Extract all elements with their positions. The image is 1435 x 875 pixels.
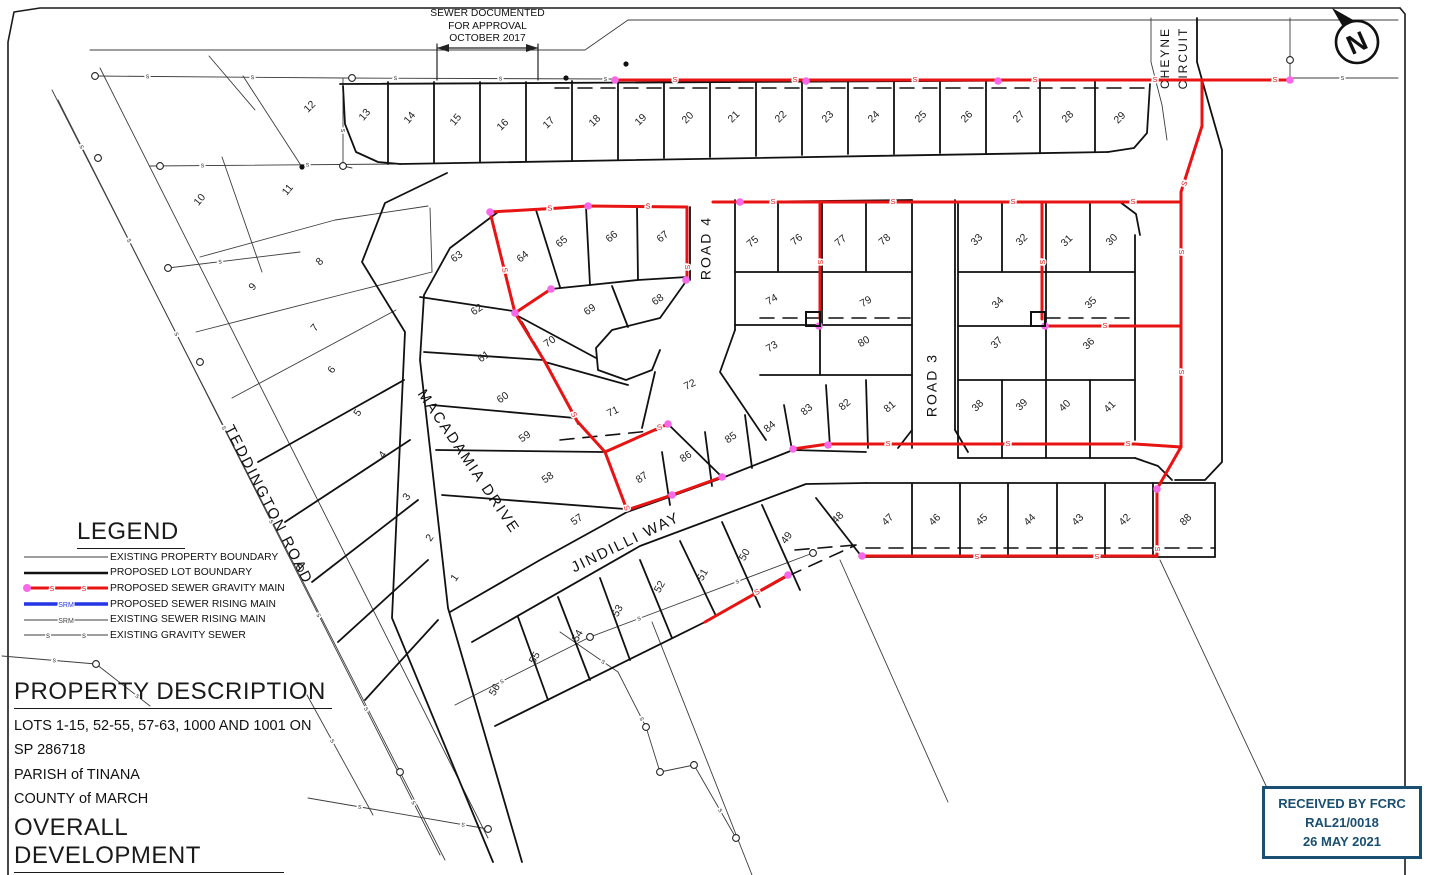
proposed-manhole-icon [789, 445, 797, 453]
proposed-lot-boundary-line [420, 297, 513, 311]
sewer-flow-letter: s [1341, 75, 1345, 82]
lot-number: 13 [356, 106, 373, 123]
proposed-sewer-gravity-main [705, 575, 788, 622]
proposed-lot-boundary-line [793, 450, 866, 452]
legend-item-label: PROPOSED SEWER GRAVITY MAIN [110, 583, 285, 594]
existing-boundary-line [200, 206, 428, 257]
sewer-manhole-icon [810, 550, 817, 557]
sewer-flow-letter: s [735, 578, 741, 586]
lot-number: 38 [969, 397, 986, 414]
existing-boundary-line [209, 56, 255, 110]
proposed-lot-boundary-line [866, 380, 868, 448]
lot-number: 72 [682, 377, 698, 393]
proposed-lot-boundary-line [745, 415, 752, 468]
proposed-lot-boundary-line [365, 620, 438, 700]
sewer-flow-letter: S [1179, 180, 1189, 188]
sewer-flow-letter: S [1094, 552, 1099, 561]
sewer-manhole-icon [340, 163, 347, 170]
lot-number: 59 [517, 428, 534, 445]
lot-number: 4 [376, 449, 389, 461]
lot-number: 18 [586, 112, 603, 129]
road-label: JINDILLI WAY [569, 509, 683, 576]
stamp-line: RECEIVED BY FCRC [1265, 794, 1419, 813]
sewer-manhole-icon [197, 359, 204, 366]
sewer-flow-letter: s [201, 162, 205, 169]
lot-number: 60 [495, 389, 512, 406]
property-title: PROPERTY DESCRIPTION [14, 678, 332, 709]
proposed-gravity-swatch-icon: SS [22, 581, 110, 595]
lot-number: 11 [280, 182, 296, 198]
sewer-flow-letter: s [125, 238, 133, 245]
sewer-flow-letter: s [716, 807, 724, 814]
lot-number: 83 [799, 401, 816, 418]
sewer-flow-letter: s [77, 144, 85, 151]
legend-item-label: PROPOSED LOT BOUNDARY [110, 567, 252, 578]
existing-boundary-line [430, 208, 432, 272]
proposed-manhole-icon [486, 208, 494, 216]
lot-number: 82 [837, 396, 854, 413]
proposed-lot-boundary-line [442, 495, 625, 509]
lot-number: 5 [351, 407, 364, 419]
lot-number: 43 [1069, 511, 1086, 528]
legend-item: ssEXISTING GRAVITY SEWER [22, 628, 322, 643]
development-title: OVERALL DEVELOPMENT [14, 814, 284, 873]
proposed-manhole-icon [802, 77, 810, 85]
sewer-flow-letter: S [1130, 197, 1135, 206]
proposed-lot-boundary-line [472, 483, 866, 642]
proposed-manhole-icon [682, 276, 690, 284]
existing-boundary-line [840, 560, 948, 802]
svg-text:s: s [46, 631, 50, 640]
svg-text:SRM: SRM [58, 618, 74, 625]
proposed-manhole-icon [718, 473, 726, 481]
legend-item-label: PROPOSED SEWER RISING MAIN [110, 599, 276, 610]
sewer-manhole-icon [93, 661, 100, 668]
existing-sewer-line [560, 632, 736, 838]
property-description: PROPERTY DESCRIPTION LOTS 1-15, 52-55, 5… [14, 678, 344, 807]
proposed-lot-boundary-line [1135, 458, 1172, 480]
proposed-lot-boundary-line [668, 424, 722, 477]
proposed-manhole-icon [611, 76, 619, 84]
lot-number: 40 [1056, 397, 1073, 414]
proposed-rising-swatch-icon: SRM [22, 597, 110, 611]
lot-number: 88 [1177, 511, 1194, 528]
proposed-manhole-icon [584, 202, 592, 210]
lot-number: 14 [401, 109, 418, 126]
lot-number: 46 [926, 511, 943, 528]
lot-number: 9 [246, 281, 259, 293]
sewer-flow-letter: S [912, 75, 917, 84]
proposed-lot-boundary-line [545, 362, 628, 385]
proposed-sewer-gravity-main [864, 80, 1202, 556]
lot-number: 61 [476, 348, 493, 365]
lot-number: 31 [1058, 232, 1075, 249]
lot-number: 45 [973, 511, 990, 528]
sewer-manhole-icon [587, 634, 594, 641]
sewer-flow-letter: S [1177, 249, 1186, 254]
sewer-flow-letter: S [547, 203, 553, 212]
proposed-sewer-gravity-main [515, 289, 551, 313]
proposed-manhole-icon [547, 285, 555, 293]
sewer-flow-letter: S [500, 267, 510, 274]
sewer-flow-letter: S [1125, 439, 1130, 448]
proposed-lot-boundary-line [600, 578, 630, 660]
existing-boundary-line [232, 310, 396, 398]
lot-number: 24 [865, 108, 882, 125]
lot-number: 47 [879, 511, 896, 528]
legend-item: SRMEXISTING SEWER RISING MAIN [22, 612, 322, 627]
legend-item-label: EXISTING SEWER RISING MAIN [110, 614, 266, 625]
legend-item: EXISTING PROPERTY BOUNDARY [22, 550, 322, 565]
sewer-flow-letter: S [792, 75, 797, 84]
sewer-flow-letter: S [770, 197, 775, 206]
lot-number: 79 [858, 294, 874, 310]
sewer-flow-letter: s [636, 615, 642, 623]
existing-boundary-line [196, 292, 352, 332]
lot-number: 77 [833, 232, 850, 249]
sewer-manhole-icon [349, 75, 356, 82]
proposed-sewer-gravity-main [490, 212, 515, 313]
lot-number: 30 [1103, 231, 1120, 248]
proposed-manhole-icon [511, 309, 519, 317]
sewer-flow-letter: S [1038, 259, 1047, 264]
lot-number: 3 [400, 491, 413, 503]
lot-number: 48 [829, 509, 846, 526]
proposed-sewer-gravity-main [793, 444, 1181, 449]
proposed-manhole-icon [736, 198, 744, 206]
lot-number: 26 [958, 108, 975, 125]
lot-number: 20 [679, 109, 696, 126]
lot-number: 67 [655, 228, 672, 245]
legend-title: LEGEND [77, 518, 185, 549]
lot-number: 73 [764, 339, 780, 355]
sewer-flow-letter: S [1152, 75, 1157, 84]
sheet-frame [1400, 8, 1405, 875]
proposed-lot-boundary-line [362, 173, 493, 862]
sewer-flow-letter: s [146, 73, 150, 80]
sewer-manhole-icon [157, 163, 164, 170]
lot-number: 71 [605, 404, 621, 420]
existing-sewer-line [150, 164, 398, 166]
boundary-node-icon [299, 164, 304, 169]
svg-text:s: s [82, 631, 86, 640]
proposed-lot-boundary-line [536, 210, 560, 287]
existing-boundary-line [243, 76, 302, 167]
sewer-manhole-icon [1287, 57, 1294, 64]
sewer-flow-letter: s [306, 162, 310, 169]
lot-number: 16 [494, 116, 511, 133]
lot-number: 63 [449, 248, 466, 265]
sewer-manhole-icon [92, 73, 99, 80]
lot-number: 58 [540, 469, 557, 486]
proposed-manhole-icon [1286, 76, 1294, 84]
property-description-line: SP 286718 [14, 742, 344, 758]
lot-number: 66 [604, 228, 621, 245]
proposed-manhole-icon [994, 77, 1002, 85]
lot-number: 84 [762, 418, 779, 435]
lot-number: 7 [308, 322, 321, 334]
proposed-lot-boundary-line [955, 430, 968, 452]
lot-number: 6 [325, 364, 338, 376]
sewer-flow-letter: S [1153, 546, 1162, 551]
proposed-lot-boundary-line [1120, 202, 1140, 235]
lot-number: 69 [582, 301, 599, 318]
lot-number: 80 [856, 334, 872, 350]
lot-number: 10 [191, 191, 208, 208]
lot-number: 27 [1010, 108, 1027, 125]
lot-number: 86 [678, 448, 695, 465]
sewer-manhole-icon [733, 835, 740, 842]
sewer-flow-letter: s [499, 678, 506, 686]
legend-item: SSPROPOSED SEWER GRAVITY MAIN [22, 581, 322, 596]
lot-number: 25 [912, 108, 929, 125]
sewer-manhole-icon [397, 769, 404, 776]
stamp-line: RAL21/0018 [1265, 813, 1419, 832]
lot-number: 29 [1111, 109, 1128, 126]
overall-development: OVERALL DEVELOPMENT TOTAL LOTS73 [14, 814, 284, 875]
lot-number: 87 [634, 469, 651, 486]
proposed-lot-boundary-line [720, 330, 766, 440]
boundary-node-icon [563, 75, 568, 80]
proposed-lot-boundary-line [495, 622, 705, 726]
proposed-lot-boundary-line [642, 372, 655, 428]
received-stamp: RECEIVED BY FCRCRAL21/001826 MAY 2021 [1262, 786, 1422, 859]
lot-number: 23 [819, 108, 836, 125]
sewer-flow-letter: s [499, 75, 503, 82]
proposed-lot-boundary-line [432, 405, 575, 418]
proposed-boundary-swatch-icon [22, 566, 110, 580]
lot-number: 53 [610, 603, 626, 619]
sewer-flow-letter: S [1005, 439, 1010, 448]
sewer-flow-letter: s [251, 74, 255, 81]
existing-boundary-line [222, 157, 262, 272]
lot-number: 64 [515, 248, 532, 265]
lot-number: 44 [1021, 511, 1038, 528]
property-description-line: COUNTY of MARCH [14, 791, 344, 807]
lot-number: 39 [1013, 396, 1030, 413]
road-label: CIRCUIT [1176, 27, 1190, 90]
sewer-flow-letter: s [339, 129, 346, 133]
lot-number: 36 [1080, 335, 1097, 352]
sewer-manhole-icon [643, 724, 650, 731]
lot-number: 17 [540, 114, 557, 131]
lot-number: 33 [968, 231, 985, 248]
sewer-note-line: FOR APPROVAL [420, 21, 555, 34]
sewer-flow-letter: S [1272, 75, 1277, 84]
sewer-manhole-icon [691, 762, 698, 769]
lot-number: 68 [650, 291, 667, 308]
lot-number: 15 [447, 111, 464, 128]
proposed-lot-boundary-line [551, 277, 687, 289]
sewer-flow-letter: s [604, 76, 608, 83]
lot-number: 37 [988, 334, 1005, 351]
lot-number: 76 [789, 231, 806, 248]
lot-number: 55 [527, 650, 543, 666]
lot-number: 78 [877, 231, 894, 248]
sewer-flow-letter: S [645, 202, 650, 211]
lot-number: 54 [570, 628, 586, 644]
sewer-flow-letter: s [638, 716, 646, 723]
proposed-lot-boundary-line [612, 286, 628, 327]
sewer-flow-letter: S [1177, 369, 1186, 374]
property-description-line: LOTS 1-15, 52-55, 57-63, 1000 AND 1001 O… [14, 718, 344, 734]
proposed-lot-boundary-line [312, 500, 418, 582]
lot-number: 81 [882, 398, 899, 415]
sewer-manhole-icon [165, 265, 172, 272]
sewer-flow-letter: S [683, 264, 692, 269]
proposed-manhole-icon [858, 552, 866, 560]
lot-number: 32 [1013, 231, 1030, 248]
existing-sewer-line [455, 553, 813, 705]
lot-number: 22 [772, 108, 789, 125]
sewer-note-line: SEWER DOCUMENTED [420, 8, 555, 21]
lot-number: 85 [723, 429, 740, 446]
legend: LEGEND EXISTING PROPERTY BOUNDARYPROPOSE… [22, 518, 322, 643]
lot-number: 65 [554, 233, 571, 250]
sewer-flow-letter: S [885, 439, 890, 448]
sewer-flow-letter: S [974, 552, 979, 561]
lot-number: 1 [448, 572, 461, 584]
easement-dashed-line [795, 545, 856, 550]
lot-number: 57 [569, 511, 586, 528]
svg-text:S: S [50, 586, 55, 593]
proposed-manhole-icon [664, 420, 672, 428]
proposed-lot-boundary-line [258, 380, 404, 462]
proposed-lot-boundary-line [705, 432, 712, 486]
lot-number: 8 [314, 255, 327, 268]
north-arrow-letter: N [1342, 25, 1372, 60]
sewer-note: SEWER DOCUMENTEDFOR APPROVALOCTOBER 2017 [420, 8, 555, 46]
existing-sewer-line [168, 252, 300, 268]
proposed-lot-boundary-line [450, 450, 793, 612]
sewer-flow-letter: s [172, 331, 180, 338]
sewer-manhole-icon [485, 826, 492, 833]
boundary-node-icon [623, 61, 628, 66]
proposed-manhole-icon [668, 491, 676, 499]
property-description-line: PARISH of TINANA [14, 767, 344, 783]
sewer-flow-letter: s [600, 658, 607, 666]
legend-item: PROPOSED LOT BOUNDARY [22, 566, 322, 581]
proposed-manhole-icon [784, 571, 792, 579]
road-label: CHEYNE [1158, 27, 1172, 89]
lot-number: 49 [779, 530, 796, 547]
proposed-lot-boundary-line [640, 560, 672, 638]
sewer-flow-letter: s [409, 800, 417, 807]
legend-item-label: EXISTING GRAVITY SEWER [110, 630, 246, 641]
existing-gravity-swatch-icon: ss [22, 628, 110, 642]
sewer-flow-letter: S [1032, 75, 1037, 84]
existing-rising-swatch-icon: SRM [22, 613, 110, 627]
north-arrow-flag-icon [1332, 8, 1355, 27]
lot-number: 34 [989, 294, 1006, 311]
sewer-flow-letter: S [1010, 197, 1015, 206]
sewer-flow-letter: S [816, 259, 825, 264]
lot-number: 35 [1082, 294, 1099, 311]
proposed-lot-boundary-line [400, 152, 1108, 164]
svg-text:SRM: SRM [58, 602, 74, 609]
lot-number: 74 [764, 292, 780, 308]
lot-number: 12 [301, 98, 318, 115]
proposed-lot-boundary-line [343, 86, 400, 164]
lot-number: 19 [632, 111, 649, 128]
proposed-manhole-icon [1153, 485, 1161, 493]
lot-number: 41 [1101, 398, 1118, 415]
sewer-manhole-icon [657, 769, 664, 776]
sewer-flow-letter: s [394, 75, 398, 82]
sewer-flow-letter: s [362, 706, 370, 713]
proposed-manhole-icon [824, 441, 832, 449]
lot-number: 2 [423, 532, 436, 544]
proposed-lot-boundary-line [586, 207, 590, 285]
road-label: ROAD 4 [698, 216, 714, 280]
sewer-flow-letter: s [218, 258, 223, 265]
proposed-lot-boundary-line [826, 385, 830, 447]
svg-text:S: S [82, 586, 87, 593]
road-label: ROAD 3 [924, 353, 940, 417]
existing-boundary-line [1160, 560, 1268, 790]
lot-number: 42 [1116, 511, 1133, 528]
existing-boundary-line [352, 272, 432, 292]
stamp-line: 26 MAY 2021 [1265, 832, 1419, 851]
subdivision-plan-sheet: { "note": {"lines": ["SEWER DOCUMENTED",… [0, 0, 1435, 875]
sewer-manhole-icon [95, 155, 102, 162]
proposed-lot-boundary-line [637, 207, 638, 280]
lot-number: 21 [725, 108, 742, 125]
sewer-note-line: OCTOBER 2017 [420, 33, 555, 46]
proposed-lot-boundary-line [596, 280, 687, 380]
lot-number: 28 [1059, 108, 1076, 125]
legend-item: SRMPROPOSED SEWER RISING MAIN [22, 597, 322, 612]
existing-boundary-swatch-icon [22, 550, 110, 564]
lot-number: 51 [695, 567, 711, 583]
proposed-lot-boundary-line [784, 405, 792, 450]
sewer-flow-letter: S [672, 75, 677, 84]
sewer-flow-letter: S [1102, 321, 1107, 330]
legend-item-label: EXISTING PROPERTY BOUNDARY [110, 552, 278, 563]
lot-number: 75 [745, 233, 762, 250]
sewer-flow-letter: S [890, 197, 895, 206]
proposed-lot-boundary-line [285, 440, 410, 522]
